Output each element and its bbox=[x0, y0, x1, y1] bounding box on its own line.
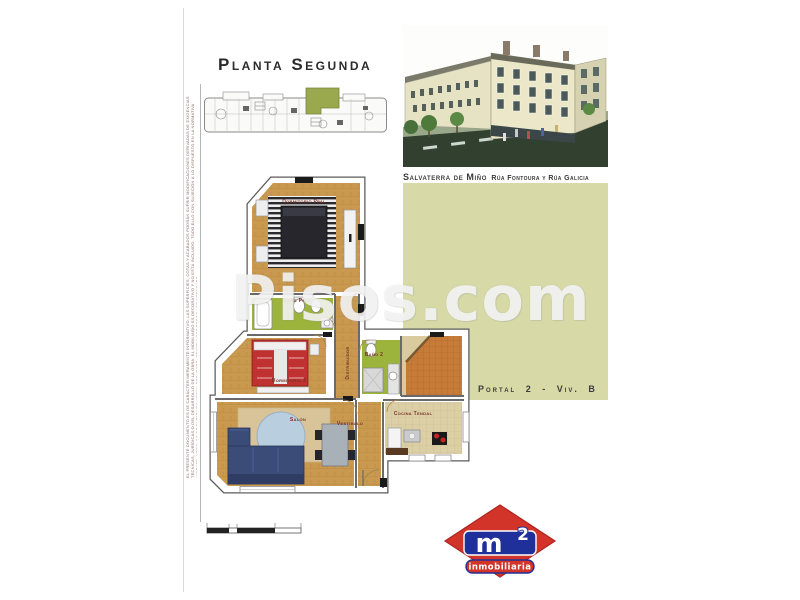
room-label-main-bathroom: Baño Ppal bbox=[283, 298, 311, 304]
floorplan-drawing bbox=[195, 172, 485, 522]
keyplan-diagram bbox=[203, 84, 389, 140]
building-render-image bbox=[403, 25, 608, 167]
unit-label: Portal 2 - Viv. B bbox=[478, 384, 597, 394]
project-streets: Rúa Fontoura y Rúa Galicia bbox=[491, 175, 589, 182]
logo-sup-2: 2 bbox=[517, 525, 529, 545]
room-label-master-bedroom: Dormitorio Ppal bbox=[282, 199, 326, 205]
page-edge-line bbox=[183, 8, 184, 592]
logo-tagline: inmobiliaria bbox=[468, 563, 531, 573]
page-title: Planta Segunda bbox=[218, 55, 372, 75]
room-label-bathroom-2: Baño 2 bbox=[365, 352, 383, 358]
room-label-bedroom-2: Dormitorio 2 bbox=[272, 378, 306, 384]
room-label-living-room: Salón bbox=[290, 417, 306, 423]
room-label-kitchen: Cocina Tendal bbox=[394, 411, 433, 417]
room-label-hallway: Distribuidor bbox=[345, 346, 351, 379]
logo-m: m bbox=[475, 529, 502, 559]
room-label-vestibule: Vestíbulo bbox=[337, 421, 363, 427]
